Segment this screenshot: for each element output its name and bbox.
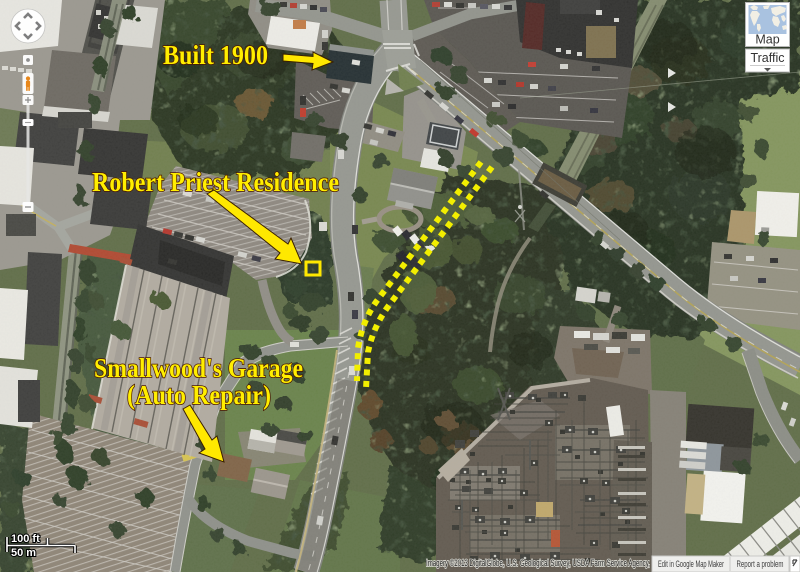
svg-text:Traffic: Traffic: [750, 51, 784, 65]
svg-text:Built 1900: Built 1900: [163, 40, 268, 70]
svg-text:100 ft: 100 ft: [11, 533, 40, 545]
svg-text:(Auto Repair): (Auto Repair): [127, 380, 271, 410]
svg-text:Map: Map: [755, 33, 779, 47]
svg-text:Report a problem: Report a problem: [737, 559, 784, 570]
svg-text:Smallwood's Garage: Smallwood's Garage: [94, 353, 303, 383]
svg-text:Edit in Google Map Maker: Edit in Google Map Maker: [658, 559, 724, 570]
svg-text:50 m: 50 m: [11, 547, 36, 559]
svg-text:Imagery ©2013 DigitalGlobe, U.: Imagery ©2013 DigitalGlobe, U.S. Geologi…: [426, 558, 650, 568]
